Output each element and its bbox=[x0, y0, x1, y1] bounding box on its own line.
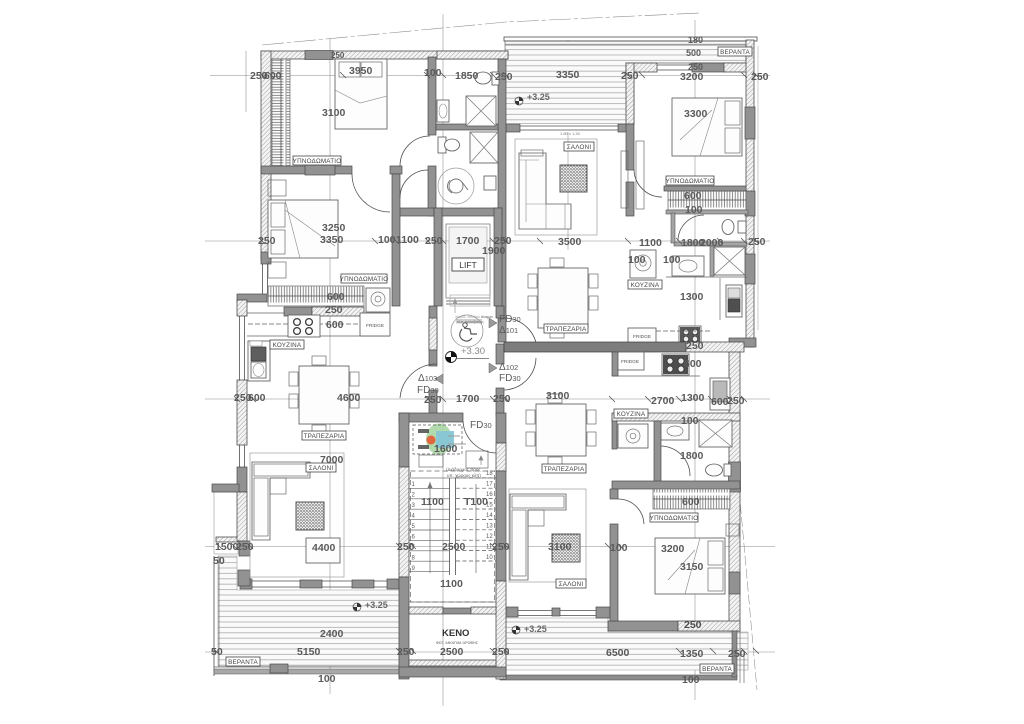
svg-text:3500: 3500 bbox=[558, 236, 582, 248]
svg-text:1300: 1300 bbox=[680, 291, 704, 303]
svg-text:ΥΠΝΟΔΩΜΑΤΙΟ: ΥΠΝΟΔΩΜΑΤΙΟ bbox=[666, 178, 715, 185]
svg-text:100: 100 bbox=[610, 542, 628, 554]
svg-text:3300: 3300 bbox=[684, 108, 708, 120]
svg-text:100: 100 bbox=[378, 234, 396, 246]
svg-text:1.80 x 1.30: 1.80 x 1.30 bbox=[560, 131, 581, 136]
svg-text:250: 250 bbox=[493, 393, 511, 405]
svg-text:1600: 1600 bbox=[434, 443, 458, 455]
svg-text:3200: 3200 bbox=[680, 71, 704, 83]
svg-text:+3.25: +3.25 bbox=[527, 92, 550, 102]
svg-text:FD30: FD30 bbox=[499, 373, 521, 384]
svg-text:3200: 3200 bbox=[661, 543, 685, 555]
svg-text:ΚΟΥΖΙΝΑ: ΚΟΥΖΙΝΑ bbox=[273, 342, 302, 349]
svg-text:6500: 6500 bbox=[606, 647, 630, 659]
svg-text:Δ103: Δ103 bbox=[418, 373, 437, 384]
svg-text:1300: 1300 bbox=[681, 392, 705, 404]
svg-text:ΤΡΑΠΕΖΑΡΙΑ: ΤΡΑΠΕΖΑΡΙΑ bbox=[304, 433, 345, 440]
svg-text:250: 250 bbox=[258, 235, 276, 247]
svg-text:ΣΑΛΟΝΙ: ΣΑΛΟΝΙ bbox=[309, 465, 334, 472]
svg-text:100: 100 bbox=[682, 674, 700, 686]
svg-text:KENO: KENO bbox=[442, 628, 469, 639]
svg-text:250: 250 bbox=[331, 51, 345, 60]
svg-text:2400: 2400 bbox=[320, 628, 344, 640]
svg-text:3350: 3350 bbox=[556, 69, 580, 81]
svg-text:17: 17 bbox=[486, 482, 493, 488]
svg-text:2500: 2500 bbox=[440, 646, 464, 658]
svg-text:ΣΑΛΟΝΙ: ΣΑΛΟΝΙ bbox=[567, 144, 592, 151]
svg-text:3100: 3100 bbox=[322, 107, 346, 119]
svg-text:ΣΑΛΟΝΙ: ΣΑΛΟΝΙ bbox=[559, 581, 584, 588]
svg-text:10: 10 bbox=[486, 555, 493, 561]
svg-text:ΥΠΝΟΔΩΜΑΤΙΟ: ΥΠΝΟΔΩΜΑΤΙΟ bbox=[650, 515, 699, 522]
svg-text:250: 250 bbox=[684, 619, 702, 631]
svg-text:3350: 3350 bbox=[320, 234, 344, 246]
svg-text:100: 100 bbox=[318, 673, 336, 685]
svg-text:3150: 3150 bbox=[680, 561, 704, 573]
svg-text:100: 100 bbox=[681, 415, 699, 427]
svg-text:12: 12 bbox=[486, 534, 493, 540]
svg-text:3100: 3100 bbox=[548, 541, 572, 553]
svg-text:Δ101: Δ101 bbox=[499, 325, 518, 336]
svg-text:1850: 1850 bbox=[455, 70, 479, 82]
svg-text:1100: 1100 bbox=[639, 237, 662, 249]
svg-text:100: 100 bbox=[628, 254, 646, 266]
svg-text:14: 14 bbox=[486, 513, 493, 519]
svg-text:600: 600 bbox=[327, 291, 345, 303]
svg-text:ΦΩΤ. ΑΝΟΙΓΜΑ ΟΡΟΦΗΣ: ΦΩΤ. ΑΝΟΙΓΜΑ ΟΡΟΦΗΣ bbox=[436, 641, 478, 645]
svg-text:(Διάδρομος προς: (Διάδρομος προς bbox=[446, 466, 481, 472]
svg-text:ΒΕΡΑΝΤΑ: ΒΕΡΑΝΤΑ bbox=[720, 49, 750, 56]
svg-text:600: 600 bbox=[682, 496, 700, 508]
svg-text:1900: 1900 bbox=[482, 245, 506, 257]
svg-text:600: 600 bbox=[684, 190, 702, 202]
svg-text:FD30: FD30 bbox=[499, 314, 521, 325]
svg-text:Δ102: Δ102 bbox=[499, 362, 518, 373]
svg-text:1100: 1100 bbox=[440, 578, 463, 590]
svg-text:+3.30: +3.30 bbox=[461, 346, 485, 357]
svg-text:ΒΕΡΑΝΤΑ: ΒΕΡΑΝΤΑ bbox=[702, 666, 732, 673]
svg-text:18: 18 bbox=[486, 471, 493, 477]
svg-text:FRIDGE: FRIDGE bbox=[366, 323, 384, 329]
svg-text:600: 600 bbox=[326, 319, 344, 331]
svg-text:3950: 3950 bbox=[349, 65, 373, 77]
svg-text:1100: 1100 bbox=[396, 234, 419, 246]
svg-text:600: 600 bbox=[264, 70, 282, 82]
svg-text:250: 250 bbox=[686, 340, 704, 352]
svg-text:4600: 4600 bbox=[337, 392, 361, 404]
svg-text:+3.25: +3.25 bbox=[365, 600, 388, 610]
svg-text:13: 13 bbox=[486, 524, 493, 530]
svg-text:600: 600 bbox=[248, 392, 266, 404]
svg-text:+3.25: +3.25 bbox=[524, 624, 547, 634]
svg-text:100: 100 bbox=[663, 254, 681, 266]
svg-text:600: 600 bbox=[684, 358, 702, 370]
svg-text:ΚΟΥΖΙΝΑ: ΚΟΥΖΙΝΑ bbox=[617, 411, 646, 418]
svg-text:1100: 1100 bbox=[421, 496, 444, 508]
svg-text:50: 50 bbox=[213, 555, 225, 567]
svg-text:7000: 7000 bbox=[320, 454, 344, 466]
svg-text:250: 250 bbox=[621, 70, 639, 82]
svg-text:FRIDGE: FRIDGE bbox=[633, 334, 651, 340]
svg-text:4400: 4400 bbox=[312, 542, 336, 554]
svg-text:250: 250 bbox=[424, 394, 442, 406]
svg-text:ΚΟΥΖΙΝΑ: ΚΟΥΖΙΝΑ bbox=[631, 282, 660, 289]
svg-text:1800: 1800 bbox=[680, 450, 704, 462]
svg-text:υπ. χώρους κλπ): υπ. χώρους κλπ) bbox=[447, 472, 481, 478]
svg-text:100: 100 bbox=[685, 204, 703, 216]
svg-text:180: 180 bbox=[688, 35, 703, 45]
svg-text:1350: 1350 bbox=[680, 648, 704, 660]
svg-text:5150: 5150 bbox=[297, 646, 321, 658]
svg-text:FD30: FD30 bbox=[470, 420, 492, 431]
svg-text:2700: 2700 bbox=[651, 395, 675, 407]
svg-text:3100: 3100 bbox=[546, 390, 570, 402]
svg-text:2000: 2000 bbox=[700, 237, 724, 249]
svg-text:ΤΡΑΠΕΖΑΡΙΑ: ΤΡΑΠΕΖΑΡΙΑ bbox=[544, 466, 585, 473]
svg-text:250: 250 bbox=[688, 62, 703, 72]
svg-text:100: 100 bbox=[424, 67, 442, 79]
svg-text:FRIDGE: FRIDGE bbox=[621, 359, 639, 365]
svg-text:ΥΠΝΟΔΩΜΑΤΙΟ: ΥΠΝΟΔΩΜΑΤΙΟ bbox=[293, 158, 342, 165]
svg-text:1700: 1700 bbox=[456, 393, 480, 405]
svg-text:250: 250 bbox=[325, 304, 343, 316]
svg-text:ΒΕΡΑΝΤΑ: ΒΕΡΑΝΤΑ bbox=[228, 659, 258, 666]
svg-text:ΥΠΝΟΔΩΜΑΤΙΟ: ΥΠΝΟΔΩΜΑΤΙΟ bbox=[340, 276, 389, 283]
svg-text:3250: 3250 bbox=[322, 222, 346, 234]
svg-text:1700: 1700 bbox=[456, 235, 480, 247]
svg-text:500: 500 bbox=[686, 48, 701, 58]
svg-text:T100: T100 bbox=[464, 496, 488, 508]
svg-text:2500: 2500 bbox=[442, 541, 466, 553]
svg-text:LIFT: LIFT bbox=[459, 260, 476, 270]
svg-text:ΤΡΑΠΕΖΑΡΙΑ: ΤΡΑΠΕΖΑΡΙΑ bbox=[546, 326, 587, 333]
